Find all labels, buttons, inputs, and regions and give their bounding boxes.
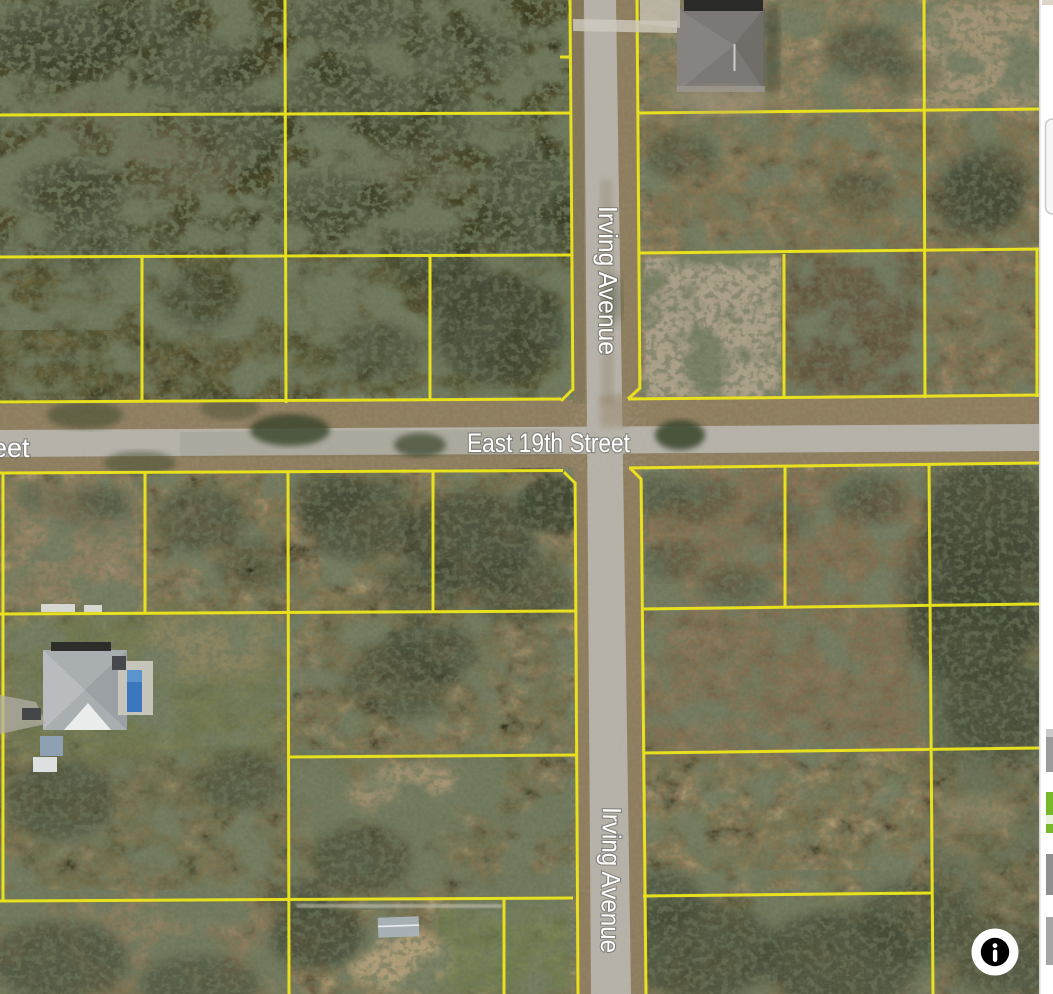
svg-text:eet: eet xyxy=(0,433,30,463)
svg-text:Irving Avenue: Irving Avenue xyxy=(595,807,627,953)
svg-text:East 19th Street: East 19th Street xyxy=(467,428,630,458)
svg-text:Irving Avenue: Irving Avenue xyxy=(593,206,623,355)
